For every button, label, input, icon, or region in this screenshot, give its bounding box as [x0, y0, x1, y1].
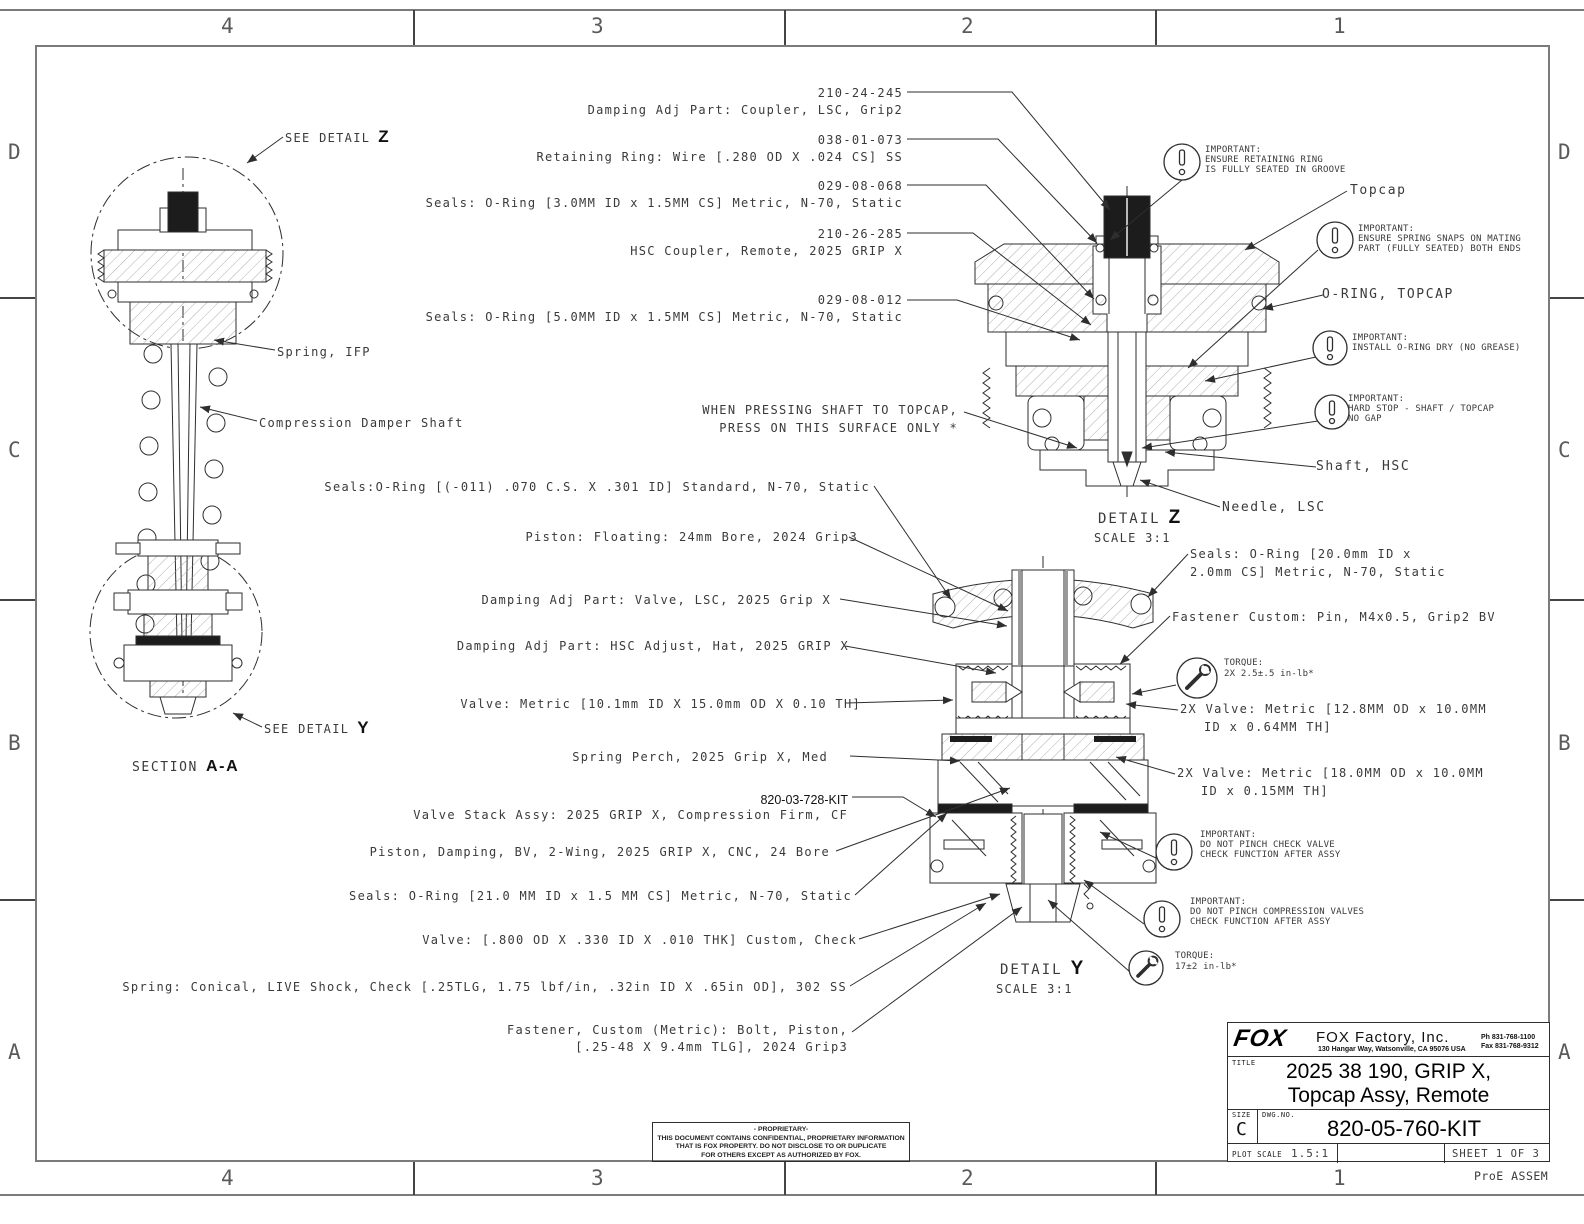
- important-title: IMPORTANT:: [1358, 224, 1521, 234]
- important-title: IMPORTANT:: [1352, 333, 1521, 343]
- detail-letter-y: Y: [357, 718, 370, 737]
- detail-letter: Y: [1071, 958, 1085, 979]
- see-detail-y-label: SEE DETAILY: [264, 719, 370, 738]
- title-block-divider: [1228, 1056, 1549, 1057]
- company-fax: Fax 831-768-9312: [1481, 1043, 1539, 1050]
- important-note: IMPORTANT: DO NOT PINCH COMPRESSION VALV…: [1190, 897, 1364, 927]
- part-desc: Seals: O-Ring [3.0MM ID x 1.5MM CS] Metr…: [426, 195, 903, 212]
- important-line: ENSURE RETAINING RING: [1205, 155, 1345, 165]
- mid-callout: Valve: Metric [10.1mm ID X 15.0mm OD X 0…: [460, 696, 861, 713]
- torque-value: 17±2 in-lb*: [1175, 962, 1237, 973]
- valve-18-label: 2X Valve: Metric [18.0MM OD x 10.0MM ID …: [1177, 764, 1484, 800]
- part-number: 029-08-068: [426, 178, 903, 195]
- drawing-title-line1: 2025 38 190, GRIP X,: [1228, 1060, 1549, 1084]
- press-note-line1: WHEN PRESSING SHAFT TO TOPCAP,: [702, 401, 958, 419]
- mid-callout: Fastener, Custom (Metric): Bolt, Piston,…: [507, 1022, 848, 1056]
- part-callout: 038-01-073 Retaining Ring: Wire [.280 OD…: [536, 132, 903, 166]
- needle-lsc-label: Needle, LSC: [1222, 499, 1326, 516]
- detail-y-scale: SCALE 3:1: [996, 981, 1073, 998]
- part-callout: 029-08-068 Seals: O-Ring [3.0MM ID x 1.5…: [426, 178, 903, 212]
- fox-logo: FOX: [1232, 1025, 1289, 1053]
- detail-y-title: DETAILY: [1000, 960, 1085, 979]
- title-block: FOX FOX Factory, Inc. 130 Hangar Way, Wa…: [1227, 1022, 1550, 1162]
- torque-title: TORQUE:: [1175, 951, 1237, 962]
- mid-callout: Damping Adj Part: HSC Adjust, Hat, 2025 …: [457, 638, 849, 655]
- section-word: SECTION: [132, 760, 198, 775]
- torque-title: TORQUE:: [1224, 658, 1314, 669]
- oring-topcap-label: O-RING, TOPCAP: [1322, 286, 1454, 303]
- important-line: ENSURE SPRING SNAPS ON MATING: [1358, 234, 1521, 244]
- press-note: WHEN PRESSING SHAFT TO TOPCAP, PRESS ON …: [702, 401, 958, 437]
- mid-callout: Spring Perch, 2025 Grip X, Med: [572, 749, 828, 766]
- mid-callout: Spring: Conical, LIVE Shock, Check [.25T…: [122, 979, 847, 996]
- mid-callout-line1: Fastener, Custom (Metric): Bolt, Piston,: [507, 1022, 848, 1039]
- damper-shaft-label: Compression Damper Shaft: [259, 415, 464, 432]
- title-block-divider: [1337, 1143, 1338, 1163]
- plot-scale-value: 1.5:1: [1291, 1147, 1329, 1160]
- part-number: 038-01-073: [536, 132, 903, 149]
- important-line: DO NOT PINCH CHECK VALVE: [1200, 840, 1340, 850]
- proprietary-line: THIS DOCUMENT CONTAINS CONFIDENTIAL, PRO…: [653, 1135, 909, 1144]
- important-line: CHECK FUNCTION AFTER ASSY: [1200, 850, 1340, 860]
- detail-letter-z: Z: [378, 127, 390, 146]
- proprietary-line: - PROPRIETARY-: [653, 1126, 909, 1135]
- spring-ifp-label: Spring, IFP: [277, 344, 371, 361]
- valve-line2: ID x 0.15MM TH]: [1177, 782, 1484, 800]
- section-id: A-A: [206, 758, 239, 775]
- title-block-divider: [1444, 1143, 1445, 1163]
- detail-letter: Z: [1169, 507, 1182, 528]
- mid-callout-kit: 820-03-728-KIT Valve Stack Assy: 2025 GR…: [413, 793, 848, 824]
- sheet-number: SHEET 1 OF 3: [1452, 1148, 1540, 1160]
- company-address: 130 Hangar Way, Watsonville, CA 95076 US…: [1318, 1046, 1466, 1053]
- important-icon: [1156, 834, 1192, 870]
- important-line: INSTALL O-RING DRY (NO GREASE): [1352, 343, 1521, 353]
- detail-word: DETAIL: [1000, 962, 1063, 978]
- part-number: 210-24-245: [588, 85, 903, 102]
- torque-note: TORQUE: 2X 2.5±.5 in-lb*: [1224, 658, 1314, 680]
- important-icon: [1315, 395, 1349, 429]
- valve-12-label: 2X Valve: Metric [12.8MM OD x 10.0MM ID …: [1180, 700, 1487, 736]
- part-desc: Retaining Ring: Wire [.280 OD X .024 CS]…: [536, 149, 903, 166]
- fastener-pin-label: Fastener Custom: Pin, M4x0.5, Grip2 BV: [1172, 609, 1496, 626]
- torque-wrench-icon: [1129, 951, 1163, 985]
- important-note: IMPORTANT: DO NOT PINCH CHECK VALVE CHEC…: [1200, 830, 1340, 860]
- important-note: IMPORTANT: ENSURE RETAINING RING IS FULL…: [1205, 145, 1345, 175]
- important-title: IMPORTANT:: [1190, 897, 1364, 907]
- important-line: DO NOT PINCH COMPRESSION VALVES: [1190, 907, 1364, 917]
- valve-line2: ID x 0.64MM TH]: [1180, 718, 1487, 736]
- important-title: IMPORTANT:: [1205, 145, 1345, 155]
- section-aa-drawing: [90, 157, 283, 718]
- drawing-title-line2: Topcap Assy, Remote: [1228, 1084, 1549, 1108]
- important-icon: [1164, 144, 1200, 180]
- mid-callout: Seals: O-Ring [21.0 MM ID x 1.5 MM CS] M…: [349, 888, 852, 905]
- torque-value: 2X 2.5±.5 in-lb*: [1224, 669, 1314, 680]
- important-line: PART (FULLY SEATED) BOTH ENDS: [1358, 244, 1521, 254]
- important-note: IMPORTANT: INSTALL O-RING DRY (NO GREASE…: [1352, 333, 1521, 353]
- seals-20mm-label: Seals: O-Ring [20.0mm ID x 2.0mm CS] Met…: [1190, 545, 1446, 581]
- part-desc: Damping Adj Part: Coupler, LSC, Grip2: [588, 102, 903, 119]
- part-desc: Seals: O-Ring [5.0MM ID x 1.5MM CS] Metr…: [426, 309, 903, 326]
- important-line: IS FULLY SEATED IN GROOVE: [1205, 165, 1345, 175]
- proprietary-line: THAT IS FOX PROPERTY. DO NOT DISCLOSE TO…: [653, 1143, 909, 1152]
- important-line: NO GAP: [1348, 414, 1494, 424]
- kit-part-number: 820-03-728-KIT: [413, 793, 848, 807]
- torque-wrench-icon: [1177, 658, 1217, 698]
- proprietary-notice: - PROPRIETARY- THIS DOCUMENT CONTAINS CO…: [652, 1122, 910, 1162]
- kit-desc: Valve Stack Assy: 2025 GRIP X, Compressi…: [413, 807, 848, 824]
- detail-z-scale: SCALE 3:1: [1094, 530, 1171, 547]
- see-detail-word: SEE DETAIL: [264, 722, 349, 736]
- proe-assem-note: ProE ASSEM: [1474, 1169, 1548, 1183]
- important-note: IMPORTANT: HARD STOP - SHAFT / TOPCAP NO…: [1348, 394, 1494, 424]
- see-detail-word: SEE DETAIL: [285, 131, 370, 145]
- mid-callout: Seals:O-Ring [(-011) .070 C.S. X .301 ID…: [324, 479, 870, 496]
- size-label: SIZE: [1232, 1111, 1251, 1119]
- important-title: IMPORTANT:: [1200, 830, 1340, 840]
- mid-callout-line2: [.25-48 X 9.4mm TLG], 2024 Grip3: [507, 1039, 848, 1056]
- company-phone: Ph 831-768-1100: [1481, 1034, 1535, 1041]
- valve-line1: 2X Valve: Metric [12.8MM OD x 10.0MM: [1180, 700, 1487, 718]
- valve-line1: 2X Valve: Metric [18.0MM OD x 10.0MM: [1177, 764, 1484, 782]
- size-value: C: [1236, 1119, 1247, 1140]
- important-line: CHECK FUNCTION AFTER ASSY: [1190, 917, 1364, 927]
- detail-y-drawing: [930, 556, 1156, 922]
- mid-callout: Damping Adj Part: Valve, LSC, 2025 Grip …: [481, 592, 831, 609]
- topcap-label: Topcap: [1350, 182, 1407, 199]
- mid-callout: Piston, Damping, BV, 2-Wing, 2025 GRIP X…: [370, 844, 830, 861]
- plot-scale-label: PLOT SCALE: [1232, 1150, 1282, 1159]
- detail-z-drawing: [975, 186, 1279, 500]
- dwg-no-value: 820-05-760-KIT: [1257, 1116, 1551, 1142]
- see-detail-z-label: SEE DETAILZ: [285, 128, 390, 147]
- shaft-hsc-label: Shaft, HSC: [1316, 458, 1410, 475]
- important-icon: [1317, 222, 1353, 258]
- part-callout: 210-24-245 Damping Adj Part: Coupler, LS…: [588, 85, 903, 119]
- detail-z-title: DETAILZ: [1098, 509, 1181, 528]
- mid-callout: Piston: Floating: 24mm Bore, 2024 Grip3: [526, 529, 858, 546]
- detail-word: DETAIL: [1098, 511, 1161, 527]
- part-callout: 210-26-285 HSC Coupler, Remote, 2025 GRI…: [630, 226, 903, 260]
- important-icon: [1313, 331, 1347, 365]
- important-title: IMPORTANT:: [1348, 394, 1494, 404]
- press-note-line2: PRESS ON THIS SURFACE ONLY *: [702, 419, 958, 437]
- seal-line2: 2.0mm CS] Metric, N-70, Static: [1190, 563, 1446, 581]
- part-callout: 029-08-012 Seals: O-Ring [5.0MM ID x 1.5…: [426, 292, 903, 326]
- part-desc: HSC Coupler, Remote, 2025 GRIP X: [630, 243, 903, 260]
- proprietary-line: FOR OTHERS EXCEPT AS AUTHORIZED BY FOX.: [653, 1152, 909, 1161]
- torque-note: TORQUE: 17±2 in-lb*: [1175, 951, 1237, 973]
- important-line: HARD STOP - SHAFT / TOPCAP: [1348, 404, 1494, 414]
- seal-line1: Seals: O-Ring [20.0mm ID x: [1190, 545, 1446, 563]
- company-name: FOX Factory, Inc.: [1316, 1029, 1449, 1046]
- part-number: 029-08-012: [426, 292, 903, 309]
- drawing-sheet: 4 3 2 1 4 3 2 1 D C B A D C B A: [0, 0, 1584, 1224]
- part-number: 210-26-285: [630, 226, 903, 243]
- important-icon: [1144, 901, 1180, 937]
- title-block-divider: [1228, 1143, 1549, 1144]
- important-note: IMPORTANT: ENSURE SPRING SNAPS ON MATING…: [1358, 224, 1521, 254]
- mid-callout: Valve: [.800 OD X .330 ID X .010 THK] Cu…: [422, 932, 857, 949]
- section-aa-label: SECTIONA-A: [132, 758, 239, 776]
